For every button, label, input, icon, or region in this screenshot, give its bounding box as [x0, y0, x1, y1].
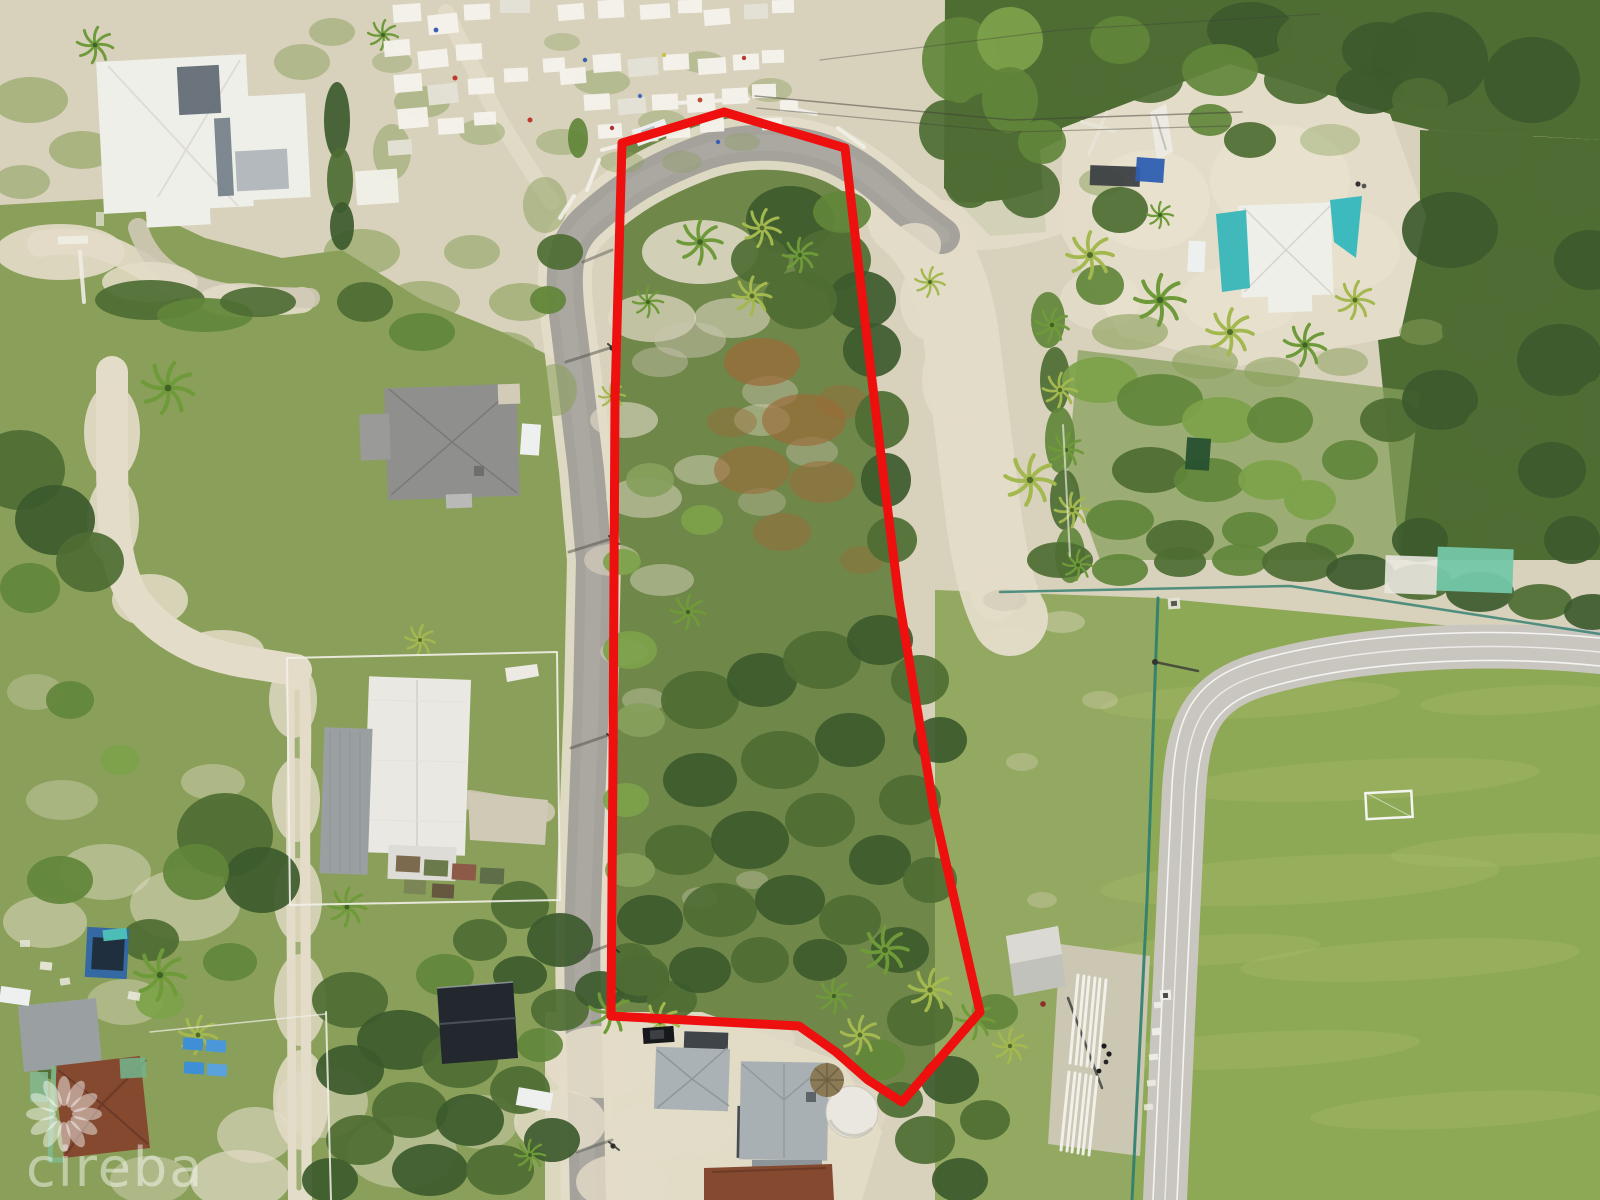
palm-center — [882, 947, 888, 953]
dot — [698, 98, 703, 103]
dot — [1101, 1043, 1106, 1048]
dot — [662, 53, 666, 57]
white-car-teal-house — [1187, 241, 1206, 273]
aerial-photo: cireba — [0, 0, 1600, 1200]
bush — [932, 1158, 988, 1200]
court-apron — [1384, 555, 1437, 595]
porch — [446, 494, 472, 509]
palm-center — [1008, 1044, 1012, 1048]
bush — [537, 234, 583, 270]
palm-center — [1087, 252, 1093, 258]
terrain-patch — [0, 224, 125, 280]
grave-crypt — [617, 97, 646, 115]
palm-tree — [1043, 373, 1077, 407]
palm-center — [381, 33, 385, 37]
terrain-patch — [544, 33, 580, 51]
dot — [434, 28, 439, 33]
grave-crypt — [455, 43, 482, 61]
palm-center — [1058, 388, 1062, 392]
terrain-patch — [272, 758, 320, 842]
grave-crypt — [598, 0, 625, 19]
grave-crypt — [598, 123, 623, 139]
white-house-ell — [145, 194, 210, 227]
terrain-patch — [1082, 691, 1118, 709]
trailer — [1090, 165, 1141, 187]
garden-bed — [432, 883, 455, 898]
black-car-roof — [650, 1030, 665, 1040]
dot — [638, 94, 642, 98]
palm-center — [686, 610, 690, 614]
grave-crypt — [467, 77, 494, 95]
bush — [1284, 480, 1336, 520]
marker-center — [1163, 993, 1168, 998]
bush — [1322, 440, 1378, 480]
gray-house-ell — [359, 413, 391, 460]
terrain-patch — [444, 235, 500, 269]
bush — [1264, 56, 1336, 104]
grave-crypt — [762, 50, 784, 64]
grave-crypt — [393, 73, 422, 93]
terrain-patch — [545, 1026, 655, 1098]
dot — [1104, 1060, 1109, 1065]
debris — [20, 940, 30, 947]
terrain-patch — [753, 513, 811, 551]
green-shed — [1185, 437, 1211, 471]
grave-crypt — [583, 93, 610, 111]
garden-bed — [424, 859, 449, 876]
dot — [610, 126, 614, 130]
bush — [46, 681, 94, 719]
bush — [568, 118, 588, 158]
bush — [977, 7, 1043, 73]
palm-center — [1027, 477, 1034, 484]
bush — [1508, 584, 1572, 620]
bush — [1000, 162, 1060, 218]
palm-center — [858, 1033, 863, 1038]
terrain-patch — [3, 896, 87, 948]
bush — [392, 1144, 468, 1196]
bush — [220, 287, 296, 317]
watermark-text: cireba — [26, 1136, 204, 1199]
bush — [611, 954, 669, 996]
bush — [1222, 512, 1278, 548]
bush — [389, 313, 455, 351]
terrain-patch — [922, 336, 978, 424]
bush — [785, 793, 855, 847]
terrain-patch — [1399, 319, 1445, 345]
bush — [1402, 192, 1498, 268]
grave-crypt — [474, 111, 497, 125]
bush — [1442, 297, 1518, 363]
dot — [716, 140, 720, 144]
dot — [453, 76, 458, 81]
bush — [755, 875, 825, 925]
dot — [610, 1143, 615, 1148]
terrain-patch — [84, 384, 140, 480]
bush — [815, 713, 885, 767]
dot — [1040, 1001, 1046, 1007]
terrain-patch — [180, 630, 264, 670]
white-marker — [1154, 1002, 1163, 1009]
roof-notch — [498, 384, 521, 405]
bush — [1464, 402, 1536, 458]
bush — [1117, 57, 1183, 103]
teal-house-ext — [1268, 291, 1313, 313]
green-deck — [119, 1057, 146, 1078]
terrain-patch — [1244, 357, 1300, 387]
grave-crypt — [678, 0, 702, 13]
bush — [895, 1116, 955, 1164]
garden-bed — [396, 855, 421, 872]
palm-center — [93, 43, 98, 48]
bush — [27, 856, 93, 904]
bush — [741, 731, 819, 789]
terrain-patch — [274, 44, 330, 80]
gate-box — [1171, 601, 1177, 606]
lower-house-left-wing — [319, 727, 372, 875]
palm-tree — [678, 220, 722, 264]
grave-crypt — [557, 3, 584, 21]
bush — [121, 919, 179, 961]
white-marker — [1152, 1028, 1162, 1036]
grave-crypt — [703, 8, 730, 26]
sun-lounger — [206, 1039, 227, 1052]
chimney — [806, 1092, 816, 1102]
terrain-patch — [789, 461, 855, 503]
terrain-patch — [1027, 892, 1057, 908]
palm-center — [1227, 329, 1233, 335]
terrain-patch — [112, 574, 188, 626]
road-path — [470, 800, 545, 812]
terrain-patch — [475, 332, 535, 368]
bush — [203, 943, 257, 981]
terrain-patch — [269, 662, 317, 738]
grave-crypt — [388, 139, 413, 156]
bush — [530, 286, 566, 314]
grave-crypt — [500, 0, 530, 13]
grave-crypt — [640, 3, 671, 20]
bush — [324, 82, 350, 158]
bush — [944, 152, 996, 208]
terrain-patch — [954, 500, 1006, 580]
terrain-patch — [939, 416, 991, 504]
bush — [1090, 16, 1150, 64]
terrain-patch — [982, 626, 1038, 654]
bush — [813, 191, 871, 233]
bush — [1154, 547, 1206, 577]
bush — [891, 655, 949, 705]
bush — [1182, 397, 1258, 443]
grave-crypt — [464, 3, 491, 20]
bush — [626, 463, 674, 497]
grave-crypt — [772, 0, 794, 13]
palm-center — [196, 1033, 201, 1038]
white-marker — [1147, 1080, 1157, 1087]
palm-center — [1076, 563, 1080, 567]
bush — [0, 563, 60, 613]
palm-center — [697, 239, 703, 245]
palm-center — [1158, 213, 1162, 217]
bush — [681, 505, 723, 535]
grave-crypt — [504, 67, 529, 82]
palm-tree — [1147, 202, 1173, 228]
grave-crypt — [427, 82, 459, 105]
wall-piece — [58, 235, 88, 244]
sun-lounger — [183, 1037, 204, 1050]
bush — [1212, 544, 1268, 576]
dot — [1152, 659, 1158, 665]
grave-crypt — [627, 57, 658, 78]
palm-center — [928, 280, 932, 284]
bush — [1018, 120, 1066, 164]
terrain-patch — [1300, 124, 1360, 156]
palm-tree — [633, 287, 663, 317]
bush — [517, 1028, 563, 1062]
palm-tree — [733, 277, 771, 315]
bush — [1247, 397, 1313, 443]
bush — [1174, 458, 1246, 502]
dot — [1106, 1051, 1111, 1056]
garden-bed — [452, 863, 477, 880]
terrain-patch — [1039, 611, 1085, 633]
bush — [527, 913, 593, 967]
grave-crypt — [733, 53, 760, 70]
thatch-ribs — [810, 1063, 844, 1097]
debris — [40, 961, 53, 970]
bush — [603, 549, 641, 575]
terrain-patch — [590, 402, 658, 438]
bush — [793, 939, 847, 981]
white-marker — [1144, 1104, 1154, 1111]
terrain-patch — [724, 338, 800, 386]
palm-center — [165, 385, 172, 392]
terrain-patch — [1172, 345, 1238, 379]
bush — [1092, 187, 1148, 233]
sports-court — [1436, 547, 1513, 594]
bush — [436, 1094, 504, 1146]
dot — [742, 56, 746, 60]
bush — [1544, 516, 1600, 564]
palm-center — [345, 905, 350, 910]
terrain-patch — [707, 407, 757, 437]
bush — [1076, 265, 1124, 305]
solar-panel — [91, 937, 125, 971]
terrain-patch — [1006, 753, 1038, 771]
debris — [60, 977, 71, 985]
palm-center — [528, 1153, 532, 1157]
bl-gray-roof — [18, 998, 102, 1072]
bush — [669, 947, 731, 993]
bush — [1326, 554, 1394, 590]
palm-center — [1050, 323, 1054, 327]
bush — [330, 202, 354, 250]
dark-roof-section — [177, 65, 221, 115]
bush — [1392, 78, 1448, 122]
grave-crypt — [397, 107, 429, 130]
bush — [337, 282, 393, 322]
chimney — [474, 466, 484, 476]
dark-roof-house — [437, 982, 518, 1064]
bush — [982, 67, 1038, 133]
grave-crypt — [663, 53, 690, 70]
bush — [683, 883, 757, 937]
bush — [711, 811, 789, 869]
terrain-patch — [724, 133, 760, 151]
bush — [1518, 442, 1586, 498]
aerial-photo-stage: cireba — [0, 0, 1600, 1200]
bush — [1182, 44, 1258, 96]
terrain-patch — [630, 564, 694, 596]
terrain-patch — [667, 1109, 733, 1155]
bush — [326, 1115, 394, 1165]
sun-lounger — [184, 1061, 205, 1074]
terrain-patch — [714, 446, 790, 494]
terrain-patch — [662, 151, 702, 173]
bush — [645, 825, 715, 875]
bush — [617, 895, 683, 945]
bush — [919, 100, 971, 160]
palm-center — [750, 294, 755, 299]
dot — [1355, 181, 1360, 186]
palm-tree — [515, 1140, 545, 1170]
bush — [163, 844, 229, 900]
dot — [528, 118, 533, 123]
white-marker — [1149, 1054, 1159, 1061]
terrain-patch — [1092, 314, 1168, 350]
bush — [1086, 500, 1154, 540]
blue-tarp — [1135, 157, 1165, 183]
grave-crypt — [392, 3, 421, 23]
terrain-patch — [1316, 348, 1368, 376]
palm-center — [1157, 297, 1164, 304]
white-tent — [355, 169, 399, 206]
garden-bed — [480, 867, 505, 884]
bush — [663, 753, 737, 807]
sun-lounger — [207, 1063, 228, 1076]
terrain-patch — [309, 18, 355, 46]
bush — [101, 745, 139, 775]
dot — [1362, 184, 1367, 189]
terrain-patch — [533, 364, 577, 416]
palm-center — [1353, 298, 1358, 303]
teal-awning-left — [1216, 210, 1250, 292]
bush — [849, 835, 911, 885]
garden-bed — [404, 879, 427, 894]
bush — [466, 1145, 534, 1195]
terrain-patch — [632, 347, 688, 377]
bush — [1262, 542, 1338, 582]
palm-center — [1302, 342, 1307, 347]
palm-tree — [1207, 309, 1253, 355]
bush — [1064, 60, 1116, 100]
bush — [1188, 104, 1232, 136]
palm-center — [157, 972, 164, 979]
palm-center — [760, 226, 765, 231]
grave-crypt — [592, 53, 621, 73]
bush — [615, 703, 665, 737]
palm-center — [1070, 508, 1074, 512]
grave-crypt — [559, 67, 586, 85]
bush — [960, 1100, 1010, 1140]
bush — [1428, 474, 1492, 526]
bush — [1092, 554, 1148, 586]
dot — [1097, 1069, 1102, 1074]
dot — [583, 58, 587, 62]
grave-crypt — [697, 57, 726, 75]
bush — [1224, 122, 1276, 158]
palm-center — [798, 253, 802, 257]
terrain-patch — [523, 177, 567, 233]
palm-center — [646, 300, 650, 304]
terrain-patch — [26, 780, 98, 820]
grave-crypt — [744, 3, 769, 19]
palm-center — [418, 638, 422, 642]
bush — [731, 937, 789, 983]
bush — [1045, 407, 1075, 473]
bush — [1484, 37, 1580, 123]
bush — [887, 994, 953, 1046]
palm-center — [927, 987, 932, 992]
porch-shade — [235, 149, 289, 192]
bush — [453, 919, 507, 961]
bush — [56, 532, 124, 592]
palm-center — [832, 994, 836, 998]
palm-tree — [1067, 232, 1113, 278]
white-car-driveway — [520, 423, 541, 455]
grave-crypt — [417, 48, 449, 69]
palm-tree — [1135, 275, 1185, 325]
terrain-patch — [259, 324, 351, 380]
terrain-patch — [889, 223, 941, 267]
grave-crypt — [383, 39, 410, 57]
grave-crypt — [437, 117, 464, 135]
debris — [96, 212, 104, 226]
grave-crypt — [427, 12, 459, 35]
